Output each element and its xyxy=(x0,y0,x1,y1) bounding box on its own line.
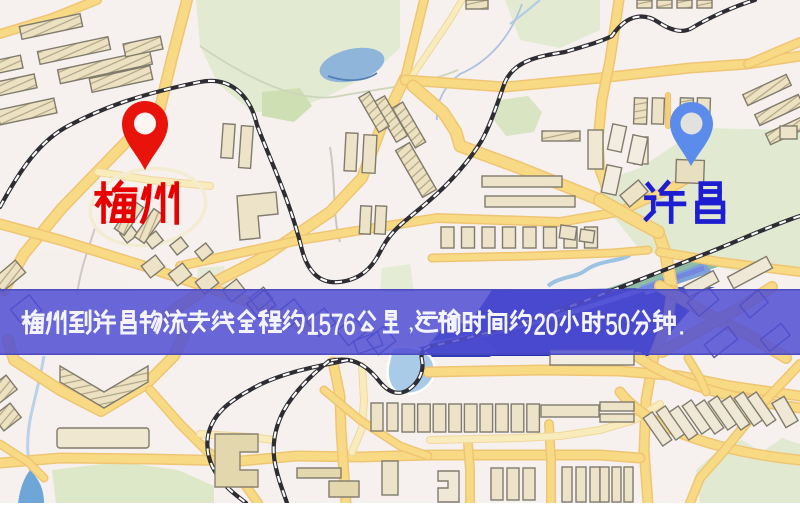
svg-text:20: 20 xyxy=(534,309,559,342)
svg-text:50: 50 xyxy=(606,309,631,342)
svg-text:.: . xyxy=(678,309,686,342)
svg-text:1576: 1576 xyxy=(306,309,355,342)
